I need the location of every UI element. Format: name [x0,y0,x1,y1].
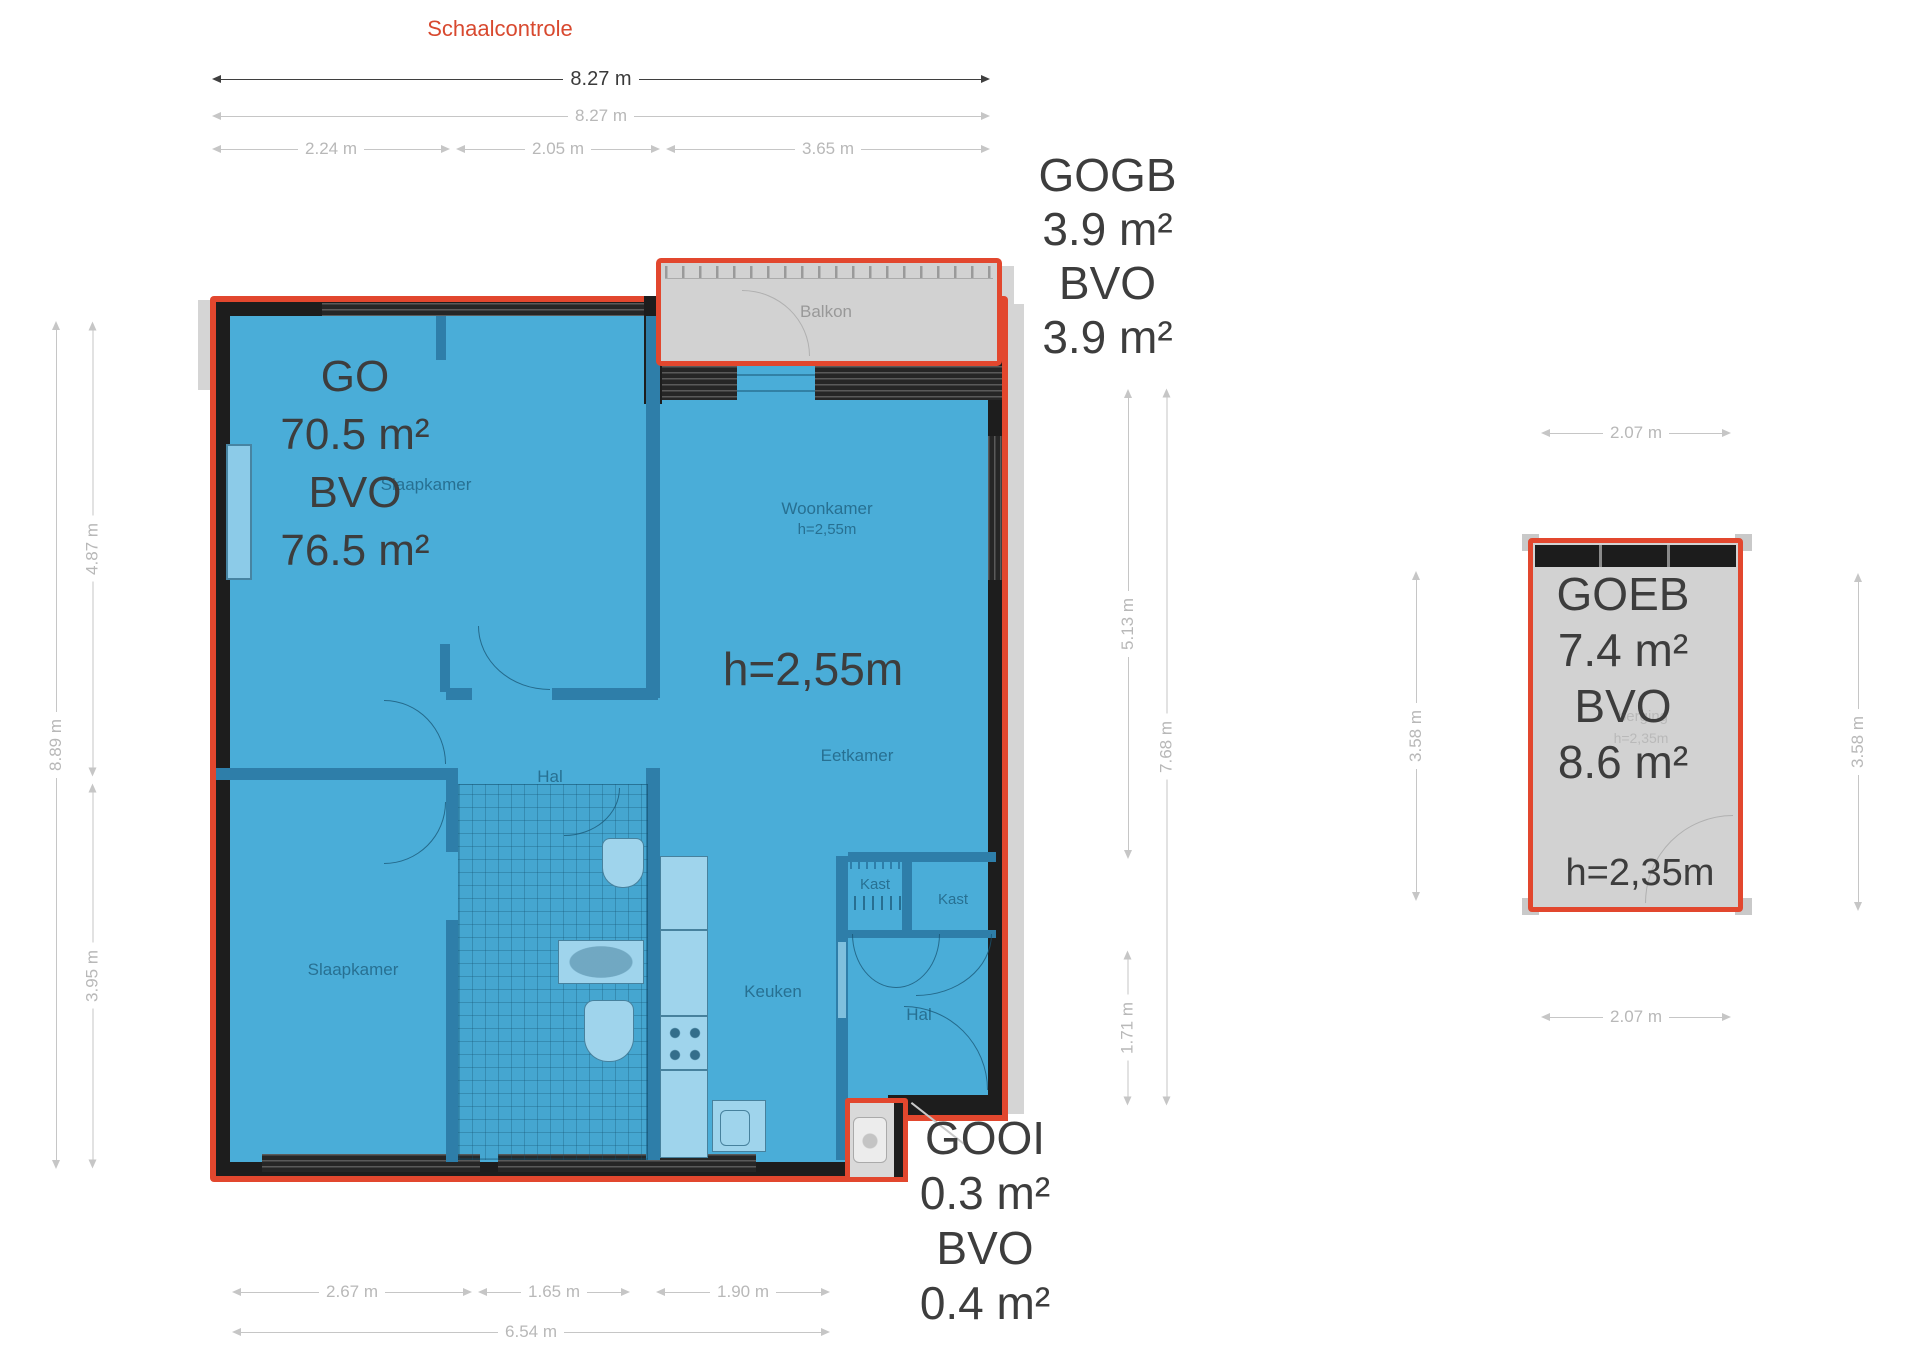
dim-label: 3.95 m [83,943,103,1009]
dim-label: 1.65 m [521,1282,587,1302]
toilet-icon [602,838,644,888]
dim-line [675,149,795,150]
dim-label: 1.71 m [1118,995,1138,1061]
arrow-up-icon [1854,573,1862,582]
go-code: GO [230,348,480,406]
kitchen-counter [660,856,708,930]
shadow-left [198,300,210,390]
dim-line [1166,780,1167,1097]
go-bvo-area: 76.5 m² [230,522,480,580]
dim-right-total: 7.68 m [1156,389,1178,1106]
dim-top-total-bold: 8.27 m [212,68,990,90]
goeb-ceiling-note: h=2,35m [1540,845,1740,901]
dim-line [1127,959,1128,995]
gooi-area: 0.3 m² [890,1166,1080,1221]
sink-basin [720,1110,750,1146]
arrow-left-icon [232,1328,241,1336]
arrow-down-icon [1854,902,1862,911]
dim-line [665,1292,710,1293]
dim-bottom-seg-2: 1.65 m [478,1281,630,1303]
room-label-hal-top: Hal [500,767,600,787]
arrow-right-icon [1722,429,1731,437]
closet-hangers [854,896,902,910]
dim-line [1416,769,1417,892]
arrow-up-icon [1412,571,1420,580]
dim-line [1550,433,1603,434]
arrow-down-icon [89,768,97,777]
wall-bedroom-split [216,768,448,780]
go-area: 70.5 m² [230,406,480,464]
floorplan-canvas: Schaalcontrole [0,0,1920,1358]
room-label-balkon: Balkon [756,302,896,322]
dim-label: 3.65 m [795,139,861,159]
area-annotation-go: GO 70.5 m² BVO 76.5 m² [230,348,480,580]
goeb-code: GOEB [1533,566,1713,622]
dim-line [861,149,981,150]
arrow-right-icon [441,145,450,153]
arrow-down-icon [52,1160,60,1169]
arrow-left-icon [478,1288,487,1296]
area-annotation-gooi: GOOI 0.3 m² BVO 0.4 m² [890,1111,1080,1331]
scale-check-title: Schaalcontrole [360,16,640,42]
arrow-right-icon [981,75,990,83]
arrow-left-icon [232,1288,241,1296]
arrow-down-icon [1412,892,1420,901]
arrow-right-icon [463,1288,472,1296]
dim-top-seg-3: 3.65 m [666,138,990,160]
dim-bottom-seg-1: 2.67 m [232,1281,472,1303]
gooi-code: GOOI [890,1111,1080,1166]
dim-line [465,149,525,150]
washbasin-icon [558,940,644,984]
dim-right-upper: 5.13 m [1117,389,1139,859]
arrow-down-icon [1124,850,1132,859]
arrow-right-icon [1722,1013,1731,1021]
room-label-kast-left: Kast [840,876,910,893]
arrow-up-icon [89,321,97,330]
dim-top-total: 8.27 m [212,105,990,127]
dim-goeb-left: 3.58 m [1405,571,1427,901]
dim-label: 1.90 m [710,1282,776,1302]
dim-left-total: 8.89 m [45,321,67,1169]
toilet-icon [584,1000,634,1062]
dim-line [56,778,57,1160]
dim-label: 3.58 m [1848,709,1868,775]
dim-line [1166,397,1167,714]
glass-partition [838,942,846,1018]
appliance-icon [853,1117,887,1163]
dim-top-seg-1: 2.24 m [212,138,450,160]
dim-line [221,79,563,80]
dim-label: 2.07 m [1603,423,1669,443]
closet-rail [850,858,904,869]
ceiling-height-note: h=2,55m [688,641,938,697]
door-opening [472,688,552,700]
dim-label: 2.07 m [1603,1007,1669,1027]
gogb-area: 3.9 m² [1015,202,1200,256]
dim-bottom-total: 6.54 m [232,1321,830,1343]
room-label-woonkamer: Woonkamer [747,499,907,519]
dim-label: 8.27 m [563,68,638,91]
door-opening [646,698,660,768]
dim-right-lower: 1.71 m [1117,951,1139,1106]
dim-bottom-seg-3: 1.90 m [656,1281,830,1303]
window-right-wall [988,436,1002,580]
room-label-hal-bottom: Hal [869,1005,969,1025]
arrow-down-icon [1163,1097,1171,1106]
dim-line [364,149,441,150]
dim-label: 6.54 m [498,1322,564,1342]
woonkamer-ceiling-label: h=2,55m [767,521,887,538]
dim-label: 5.13 m [1118,591,1138,657]
arrow-up-icon [1124,950,1132,959]
goeb-bvo-area: 8.6 m² [1533,734,1713,790]
dim-left-upper: 4.87 m [82,322,104,777]
dim-line [385,1292,463,1293]
dim-line [591,149,651,150]
go-bvo-label: BVO [230,464,480,522]
gogb-bvo-label: BVO [1015,256,1200,310]
arrow-right-icon [981,112,990,120]
dim-line [221,116,568,117]
dim-goeb-top: 2.07 m [1541,422,1731,444]
room-label-eetkamer: Eetkamer [777,746,937,766]
stove-icon [660,1016,708,1070]
dim-line [564,1332,821,1333]
dim-line [241,1292,319,1293]
wall-bath-west [446,768,458,1162]
arrow-left-icon [212,145,221,153]
dim-line [92,1009,93,1160]
dim-label: 8.27 m [568,106,634,126]
area-annotation-goeb: GOEB 7.4 m² BVO 8.6 m² [1533,566,1713,790]
arrow-up-icon [89,783,97,792]
arrow-up-icon [52,321,60,330]
arrow-right-icon [981,145,990,153]
arrow-left-icon [1541,1013,1550,1021]
gooi-bvo-area: 0.4 m² [890,1276,1080,1331]
dim-label: 4.87 m [83,516,103,582]
dim-label: 7.68 m [1157,714,1177,780]
arrow-right-icon [621,1288,630,1296]
goeb-area: 7.4 m² [1533,622,1713,678]
dim-line [56,330,57,712]
arrow-down-icon [89,1160,97,1169]
dim-line [639,79,981,80]
dim-line [92,330,93,516]
kitchen-counter [660,930,708,1016]
balcony-door-opening [737,366,815,400]
dim-label: 2.24 m [298,139,364,159]
area-annotation-gogb: GOGB 3.9 m² BVO 3.9 m² [1015,148,1200,364]
dim-line [92,582,93,768]
window-top-wall [322,303,648,316]
room-label-slaapkamer-bottom: Slaapkamer [273,960,433,980]
dim-line [587,1292,621,1293]
gooi-bvo-label: BVO [890,1221,1080,1276]
dim-label: 3.58 m [1406,703,1426,769]
arrow-up-icon [1124,389,1132,398]
dim-line [634,116,981,117]
arrow-left-icon [1541,429,1550,437]
dim-line [1128,657,1129,850]
arrow-left-icon [656,1288,665,1296]
dim-line [1858,582,1859,709]
gogb-bvo-area: 3.9 m² [1015,310,1200,364]
dim-line [92,792,93,943]
dim-line [1669,433,1722,434]
arrow-left-icon [212,112,221,120]
arrow-right-icon [821,1288,830,1296]
arrow-left-icon [212,75,221,83]
gogb-code: GOGB [1015,148,1200,202]
arrow-up-icon [1163,388,1171,397]
balcony-railing [665,266,993,279]
dim-label: 8.89 m [46,712,66,778]
dim-line [776,1292,821,1293]
room-label-kast-right: Kast [918,891,988,908]
dim-line [241,1332,498,1333]
dim-top-seg-2: 2.05 m [456,138,660,160]
room-label-keuken: Keuken [713,982,833,1002]
dim-line [1128,398,1129,591]
dim-goeb-bottom: 2.07 m [1541,1006,1731,1028]
window-balcony-wall [662,366,1002,400]
dim-line [487,1292,521,1293]
dim-line [221,149,298,150]
dim-line [1669,1017,1722,1018]
arrow-left-icon [666,145,675,153]
shadow-right [1008,304,1024,1114]
dim-line [1550,1017,1603,1018]
goeb-top-wall [1535,545,1736,567]
dim-goeb-right: 3.58 m [1847,573,1869,911]
arrow-right-icon [821,1328,830,1336]
arrow-down-icon [1124,1097,1132,1106]
dim-line [1416,580,1417,703]
arrow-left-icon [456,145,465,153]
dim-left-lower: 3.95 m [82,784,104,1169]
dim-line [1858,775,1859,902]
goeb-bvo-label: BVO [1533,678,1713,734]
door-opening [446,852,458,920]
arrow-right-icon [651,145,660,153]
dim-label: 2.67 m [319,1282,385,1302]
dim-line [1127,1061,1128,1097]
dim-label: 2.05 m [525,139,591,159]
kitchen-counter [660,1070,708,1158]
wall-stub [440,644,450,692]
